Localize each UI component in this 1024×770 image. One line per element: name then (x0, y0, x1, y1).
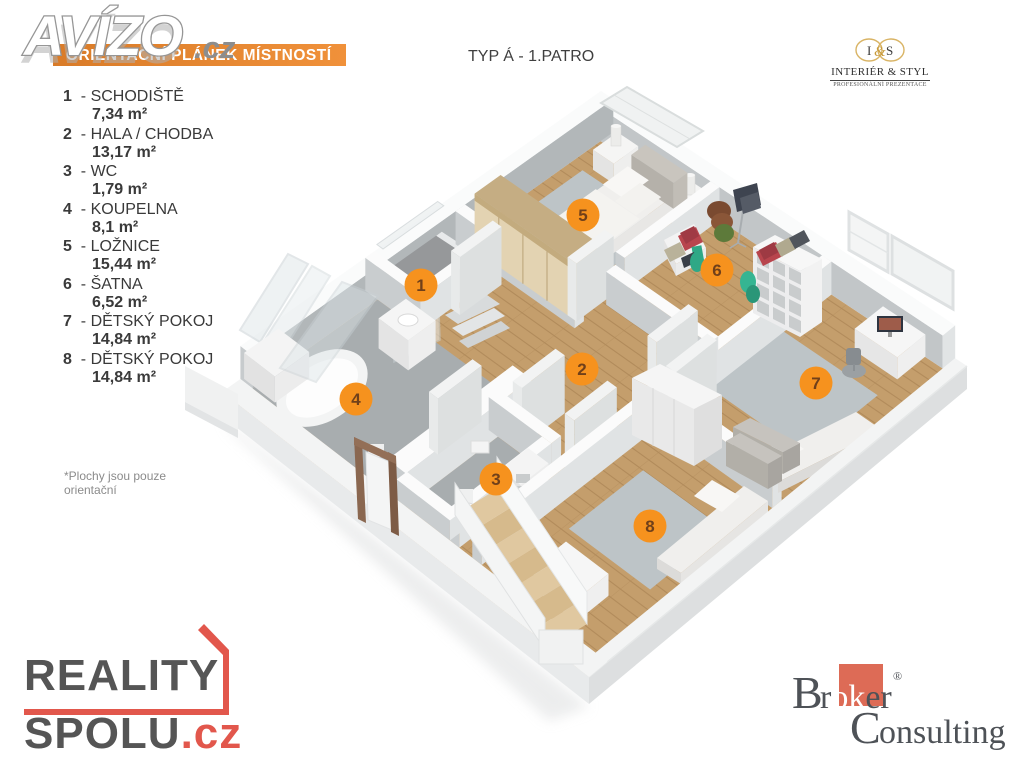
svg-text:4: 4 (351, 390, 361, 409)
svg-text:&: & (874, 44, 886, 60)
svg-text:7: 7 (811, 374, 820, 393)
svg-text:6: 6 (712, 261, 721, 280)
svg-text:AVÍZO: AVÍZO (22, 4, 182, 67)
svg-text:8: 8 (645, 517, 654, 536)
svg-text:onsulting: onsulting (879, 714, 1006, 751)
svg-text:1: 1 (416, 276, 425, 295)
svg-text:5: 5 (578, 206, 587, 225)
svg-text:SPOLU.cz: SPOLU.cz (24, 709, 242, 755)
svg-text:2: 2 (577, 360, 586, 379)
svg-text:®: ® (893, 669, 902, 683)
svg-text:S: S (886, 43, 893, 58)
svg-text:I: I (867, 43, 871, 58)
svg-text:REALITY: REALITY (24, 651, 219, 700)
svg-text:B: B (792, 667, 823, 718)
svg-text:3: 3 (491, 470, 500, 489)
svg-text:.cz: .cz (194, 30, 236, 65)
svg-text:C: C (850, 702, 881, 753)
